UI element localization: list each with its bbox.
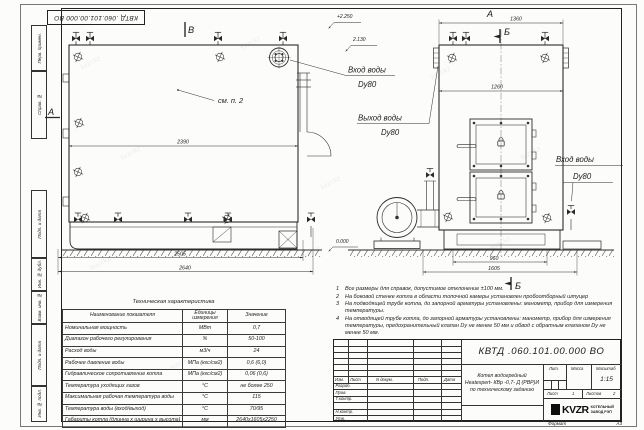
table-row: Температура уходящих газов°Сне более 250 — [63, 381, 286, 393]
lifting-mark-icon — [71, 165, 86, 180]
upper-door — [457, 119, 536, 170]
valve-icon — [541, 32, 549, 44]
elev-2250: +2.250 — [337, 14, 353, 20]
water-inlet-flange — [268, 47, 291, 69]
note-item: 1Все размеры для справок, допустимое отк… — [336, 286, 622, 293]
drain-valve-icon — [114, 213, 122, 222]
sig-nkontr: Н.контр. — [336, 409, 354, 414]
product-title: Котел водогрейный Heatexpert- КВр -0,7- … — [461, 365, 543, 403]
valve-icon — [462, 32, 470, 44]
document-designation: КВТД .060.101.00.000 ВО — [461, 340, 622, 364]
drain-valve-icon — [184, 213, 192, 222]
dim-2505: 2505 — [173, 252, 186, 258]
outlet-label: Выход воды — [358, 114, 402, 123]
table-row: Диапазон рабочего регулирования%50-100 — [63, 335, 286, 347]
lower-door — [457, 172, 536, 223]
outlet-dn: Dу80 — [381, 128, 400, 137]
col-list: Лист — [350, 377, 361, 382]
format-note: Формат А3 — [545, 421, 625, 426]
table-row: Максимальная рабочая температура воды°С1… — [63, 392, 286, 404]
sheet-number: 1 — [572, 391, 574, 396]
tech-col-header: Значение — [228, 310, 286, 323]
boiler-base — [70, 222, 297, 249]
drain-valve-icon — [224, 213, 232, 222]
logo-mark-icon — [551, 404, 560, 415]
col-izm: Изм. — [335, 377, 344, 382]
pipe-valve-icon — [426, 169, 434, 178]
valve-icon — [72, 32, 80, 44]
table-row: Номинальная мощностьМВт0,7 — [63, 323, 286, 335]
table-row: Габариты котла (длинна х ширина х высота… — [63, 416, 286, 428]
table-row: Рабочее давление водыМПа (кгс/см2)0,6 (6… — [63, 358, 286, 370]
col-ndoc: N докум. — [376, 377, 393, 382]
tech-col-header: Единицы измерения — [183, 310, 228, 323]
view-label-v: В — [188, 25, 194, 35]
inlet-dn-front: Dу80 — [573, 172, 592, 181]
view-label-a-front: А — [486, 9, 493, 19]
col-data: Дата — [444, 377, 455, 382]
sheet-label: Лист — [547, 391, 558, 396]
valve-icon — [449, 32, 457, 44]
sig-razrab: Разраб. — [336, 383, 351, 388]
mass-label: Масса — [571, 366, 583, 371]
pipe-valve-icon — [567, 206, 575, 215]
drain-valve-icon — [307, 213, 315, 222]
table-row: Гидравлическое сопротивление котлаМПа (к… — [63, 369, 286, 381]
table-row: Температура воды (вход/выход)°С70/95 — [63, 404, 286, 416]
lifting-mark-icon — [538, 51, 553, 66]
front-base — [444, 230, 601, 249]
scale-value: 1:15 — [591, 371, 622, 388]
dim-960: 960 — [490, 256, 499, 262]
drawing-sheet: kvzr.kz kvzr.kz kvzr.kz kvzr.kz kvzr.kz … — [0, 0, 644, 430]
drawing-notes: 1Все размеры для справок, допустимое отк… — [336, 286, 622, 337]
note-item: 2На боковой стенке котла в области топоч… — [336, 294, 622, 301]
lifting-mark-icon — [540, 211, 555, 226]
elev-0000: 0.000 — [336, 239, 349, 245]
table-row: Расход водым3/ч24 — [63, 346, 286, 358]
dim-2390: 2390 — [176, 140, 189, 146]
valve-icon — [214, 32, 222, 44]
fan-duct — [417, 181, 439, 227]
section-label-b-top: Б — [504, 27, 510, 37]
sig-utv: Утв. — [336, 416, 346, 421]
blower-fan — [374, 198, 420, 249]
dim-1260: 1260 — [491, 85, 503, 91]
tech-table-title: Техническая характеристика — [62, 299, 285, 305]
see-note-text: см. п. 2 — [218, 96, 243, 105]
dim-2640: 2640 — [178, 266, 191, 272]
view-label-a-side: А — [47, 107, 54, 117]
lit-label: Лит. — [549, 366, 559, 371]
company-logo: KVZR КОТЕЛЬНЫЙ ЗАВОД РЭП — [543, 398, 622, 422]
valve-icon — [279, 32, 287, 44]
tech-characteristics-table: Наименование показателя Единицы измерени… — [62, 309, 286, 428]
tech-col-header: Наименование показателя — [63, 310, 183, 323]
inlet-label-front: Вход воды — [556, 155, 594, 164]
lifting-mark-icon — [441, 210, 456, 225]
lifting-mark-icon — [213, 50, 228, 65]
drain-valve-icon — [74, 213, 82, 222]
sig-prov: Пров. — [336, 390, 347, 395]
dim-1605: 1605 — [488, 266, 500, 272]
side-view — [45, 22, 438, 275]
lifting-mark-icon — [445, 51, 460, 66]
inlet-dn-side: Dу80 — [358, 80, 377, 89]
dim-1360: 1360 — [510, 17, 522, 23]
sheets-number: 2 — [613, 391, 615, 396]
elevation-marks — [329, 23, 378, 252]
note-item: 3На подводящей трубе котла, до запорной … — [336, 301, 622, 315]
col-podp: Подп. — [418, 377, 429, 382]
lifting-mark-icon — [71, 50, 86, 65]
elev-2130: 2.130 — [352, 37, 366, 43]
flue-outlet — [296, 73, 331, 156]
inlet-label-side: Вход воды — [348, 66, 386, 75]
title-block: КВТД .060.101.00.000 ВО Изм. Лист N доку… — [333, 339, 621, 421]
valve-icon — [86, 32, 94, 44]
lifting-mark-icon — [72, 116, 87, 131]
sheets-label: Листов — [586, 391, 601, 396]
note-item: 4На отводящей трубе котла, до запорной а… — [336, 316, 622, 337]
sig-tkontr: Т.контр. — [336, 396, 353, 401]
